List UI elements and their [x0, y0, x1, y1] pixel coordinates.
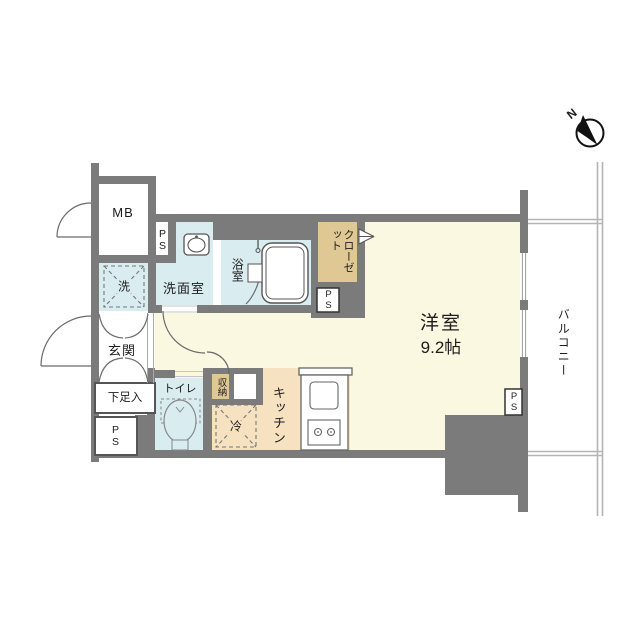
- floor-plan-drawing: [0, 0, 640, 640]
- storage-label: 収納: [216, 378, 226, 397]
- stove: [308, 420, 340, 445]
- entrance-door: [41, 316, 91, 366]
- closet-label: クローゼット: [320, 229, 354, 275]
- ps-entry-label: PS: [109, 424, 120, 448]
- ps-balcony-label: PS: [509, 391, 519, 413]
- structural-column: [445, 415, 528, 512]
- washer-label: 洗: [117, 281, 131, 294]
- compass: [577, 115, 604, 147]
- upper-cabinet: [234, 374, 256, 399]
- balcony-label: バルコニー: [557, 308, 570, 378]
- washroom-label: 洗面室: [163, 282, 205, 296]
- bathroom-label: 浴室: [231, 258, 244, 282]
- toilet-label: トイレ: [164, 384, 197, 396]
- floor-plan: MB PS 洗面室 浴室 クローゼット PS 洗 玄関 下足入 PS トイレ 収…: [0, 0, 640, 640]
- mb-door: [57, 203, 91, 237]
- kitchen-sink: [310, 382, 338, 409]
- main-room-size: 9.2帖: [421, 339, 462, 357]
- kitchen-label: キッチン: [271, 386, 285, 446]
- main-room-name: 洋室: [420, 314, 462, 334]
- mb-label: MB: [112, 206, 134, 220]
- fridge-label: 冷: [229, 421, 243, 434]
- kitchen-counter: [299, 368, 352, 450]
- entrance-label: 玄関: [108, 344, 136, 358]
- ps-closet-label: PS: [323, 289, 333, 311]
- washbasin-icon: [184, 234, 209, 255]
- shoe-cabinet-label: 下足入: [108, 392, 143, 404]
- ps-top-label: PS: [156, 228, 167, 252]
